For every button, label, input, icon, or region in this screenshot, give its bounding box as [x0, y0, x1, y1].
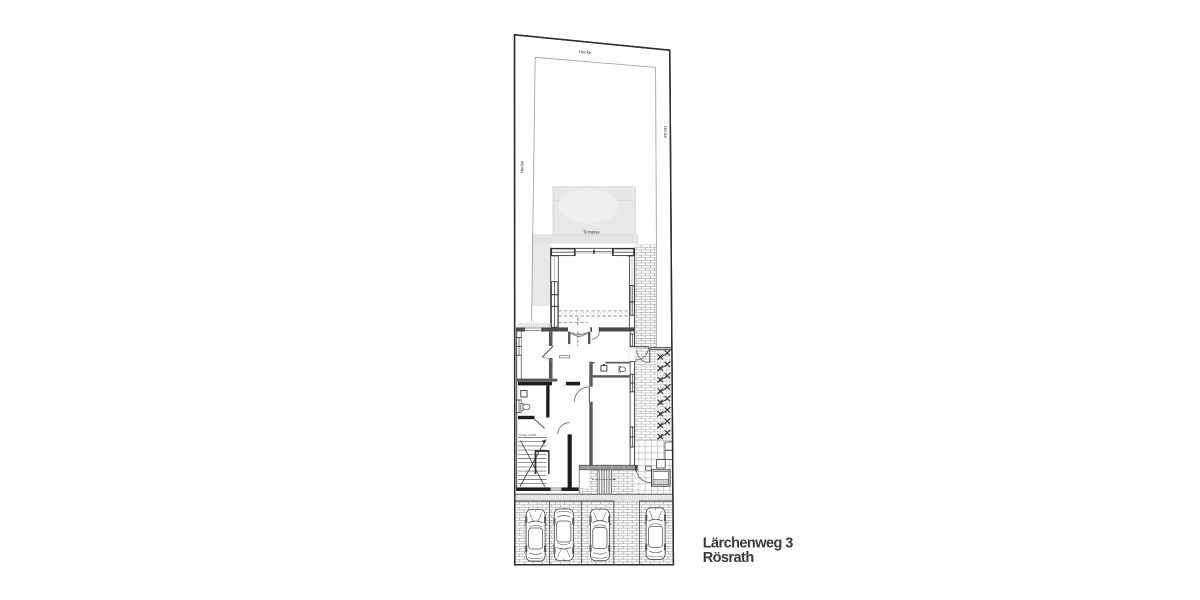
svg-text:Lärchenweg 3: Lärchenweg 3	[703, 535, 794, 551]
svg-text:16 Stg 17,5/28: 16 Stg 17,5/28	[519, 433, 536, 437]
svg-text:Hecke: Hecke	[663, 126, 668, 139]
svg-text:Terrasse: Terrasse	[583, 230, 600, 235]
svg-text:Hecke: Hecke	[520, 160, 525, 173]
svg-text:Rösrath: Rösrath	[703, 550, 754, 566]
